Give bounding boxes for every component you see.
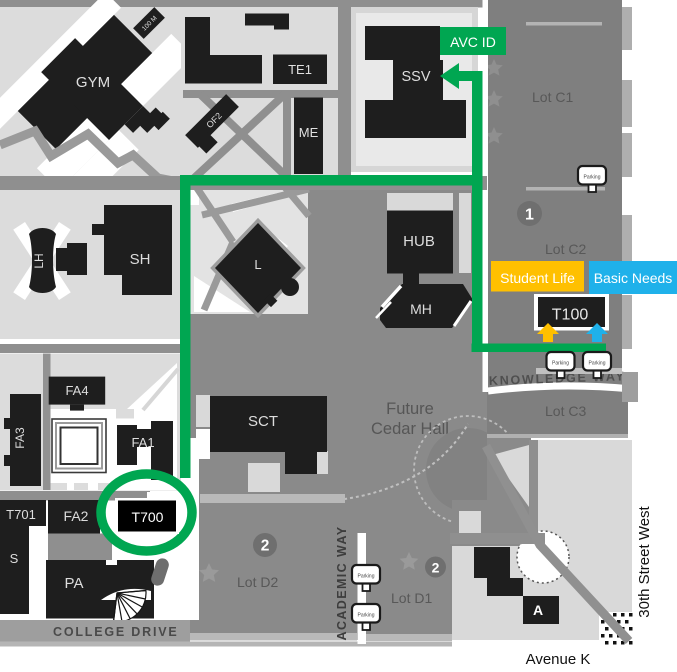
svg-text:Parking: Parking xyxy=(358,613,375,619)
svg-text:PA: PA xyxy=(65,575,84,592)
svg-text:S: S xyxy=(10,551,19,566)
svg-text:30th Street West: 30th Street West xyxy=(636,505,653,617)
svg-text:Lot D2: Lot D2 xyxy=(237,574,278,590)
svg-text:Lot C2: Lot C2 xyxy=(545,241,586,257)
svg-text:Parking: Parking xyxy=(584,175,601,181)
svg-text:ME: ME xyxy=(299,125,319,140)
svg-text:COLLEGE DRIVE: COLLEGE DRIVE xyxy=(53,625,179,639)
svg-text:LH: LH xyxy=(32,253,46,268)
svg-text:Parking: Parking xyxy=(552,361,569,367)
svg-text:Cedar Hall: Cedar Hall xyxy=(371,420,449,438)
svg-text:ACADEMIC WAY: ACADEMIC WAY xyxy=(335,526,349,641)
svg-text:GYM: GYM xyxy=(76,74,110,91)
svg-text:2: 2 xyxy=(261,538,270,555)
svg-text:Future: Future xyxy=(386,400,434,418)
svg-text:Parking: Parking xyxy=(358,574,375,580)
svg-text:T701: T701 xyxy=(6,507,36,522)
svg-text:Lot D1: Lot D1 xyxy=(391,590,432,606)
svg-text:SH: SH xyxy=(130,251,151,268)
svg-text:TE1: TE1 xyxy=(288,62,312,77)
svg-text:A: A xyxy=(533,602,543,618)
svg-text:Lot C3: Lot C3 xyxy=(545,403,586,419)
svg-text:SCT: SCT xyxy=(248,413,278,430)
svg-text:2: 2 xyxy=(432,560,440,576)
svg-text:MH: MH xyxy=(410,301,432,317)
svg-text:1: 1 xyxy=(525,207,534,224)
svg-text:AVC ID: AVC ID xyxy=(450,34,496,50)
svg-text:Avenue K: Avenue K xyxy=(526,651,591,668)
svg-text:Lot C1: Lot C1 xyxy=(532,89,573,105)
svg-text:T100: T100 xyxy=(552,307,589,324)
svg-text:FA4: FA4 xyxy=(65,383,88,398)
svg-text:HUB: HUB xyxy=(403,233,435,250)
svg-text:FA2: FA2 xyxy=(64,508,89,524)
svg-text:T700: T700 xyxy=(132,509,164,525)
svg-text:Parking: Parking xyxy=(589,361,606,367)
svg-text:Basic Needs: Basic Needs xyxy=(594,270,673,286)
svg-text:FA1: FA1 xyxy=(131,435,154,450)
svg-text:L: L xyxy=(254,257,261,272)
svg-text:SSV: SSV xyxy=(401,69,430,85)
svg-text:FA3: FA3 xyxy=(13,427,27,449)
svg-text:Student Life: Student Life xyxy=(500,270,575,286)
